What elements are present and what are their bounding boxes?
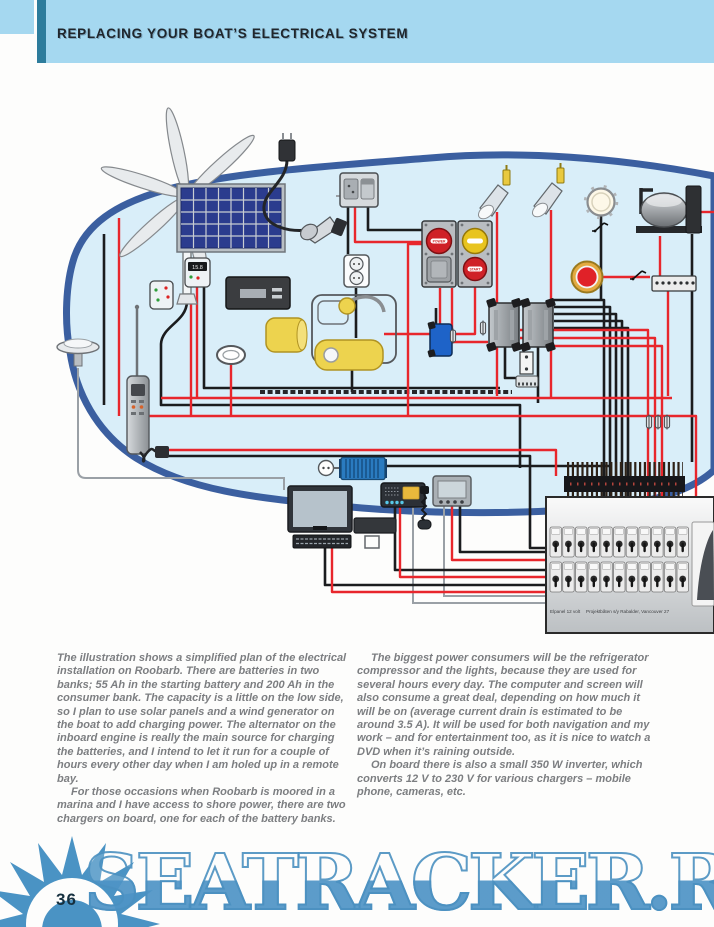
laptop-computer (288, 486, 352, 548)
panel-fuse-2 (655, 415, 660, 430)
battery-charger (340, 173, 378, 207)
solar-regulator: 15.8 (185, 258, 210, 287)
wind-regulator (150, 281, 173, 309)
power-switch-label: POWER (433, 240, 446, 244)
watermark-text: SEATRACKER.RU (84, 838, 714, 927)
page-number: 36 (56, 890, 77, 910)
media-box (354, 518, 396, 548)
boat-wiring-diagram: POWER START (0, 0, 714, 650)
article-left-column: The illustration shows a simplified plan… (57, 652, 354, 826)
battery-fuse-2 (450, 329, 455, 344)
consumer-battery-2 (520, 298, 556, 352)
switch-panel-photo: Elpanel 12 volt Projektbåten s/y Rabalde… (546, 497, 714, 633)
double-socket (344, 255, 369, 287)
paragraph: The illustration shows a simplified plan… (57, 652, 354, 786)
chartplotter (433, 476, 471, 506)
bus-bar (652, 276, 696, 291)
solar-regulator-display: 15.8 (192, 265, 203, 271)
start-switch-label: START (469, 268, 481, 272)
paragraph: The biggest power consumers will be the … (357, 652, 654, 759)
battery-fuse-1 (480, 321, 485, 336)
dome-light-mid (217, 346, 245, 364)
consumer-battery-1 (486, 298, 522, 352)
battery-monitor (226, 277, 290, 309)
panel-caption-right: Projektbåten s/y Rabalder, Vancouver 27 (586, 608, 670, 614)
starting-battery (427, 321, 452, 358)
panel-fuse-1 (646, 415, 651, 430)
paragraph: For those occasions when Roobarb is moor… (57, 786, 354, 826)
bilge-blower (572, 262, 603, 293)
panel-caption-left: Elpanel 12 volt (550, 609, 581, 614)
article-right-column: The biggest power consumers will be the … (357, 652, 654, 799)
panel-fuse-3 (664, 415, 669, 430)
magazine-page: REPLACING YOUR BOAT’S ELECTRICAL SYSTEM (0, 0, 714, 927)
paragraph: On board there is also a small 350 W inv… (357, 759, 654, 799)
